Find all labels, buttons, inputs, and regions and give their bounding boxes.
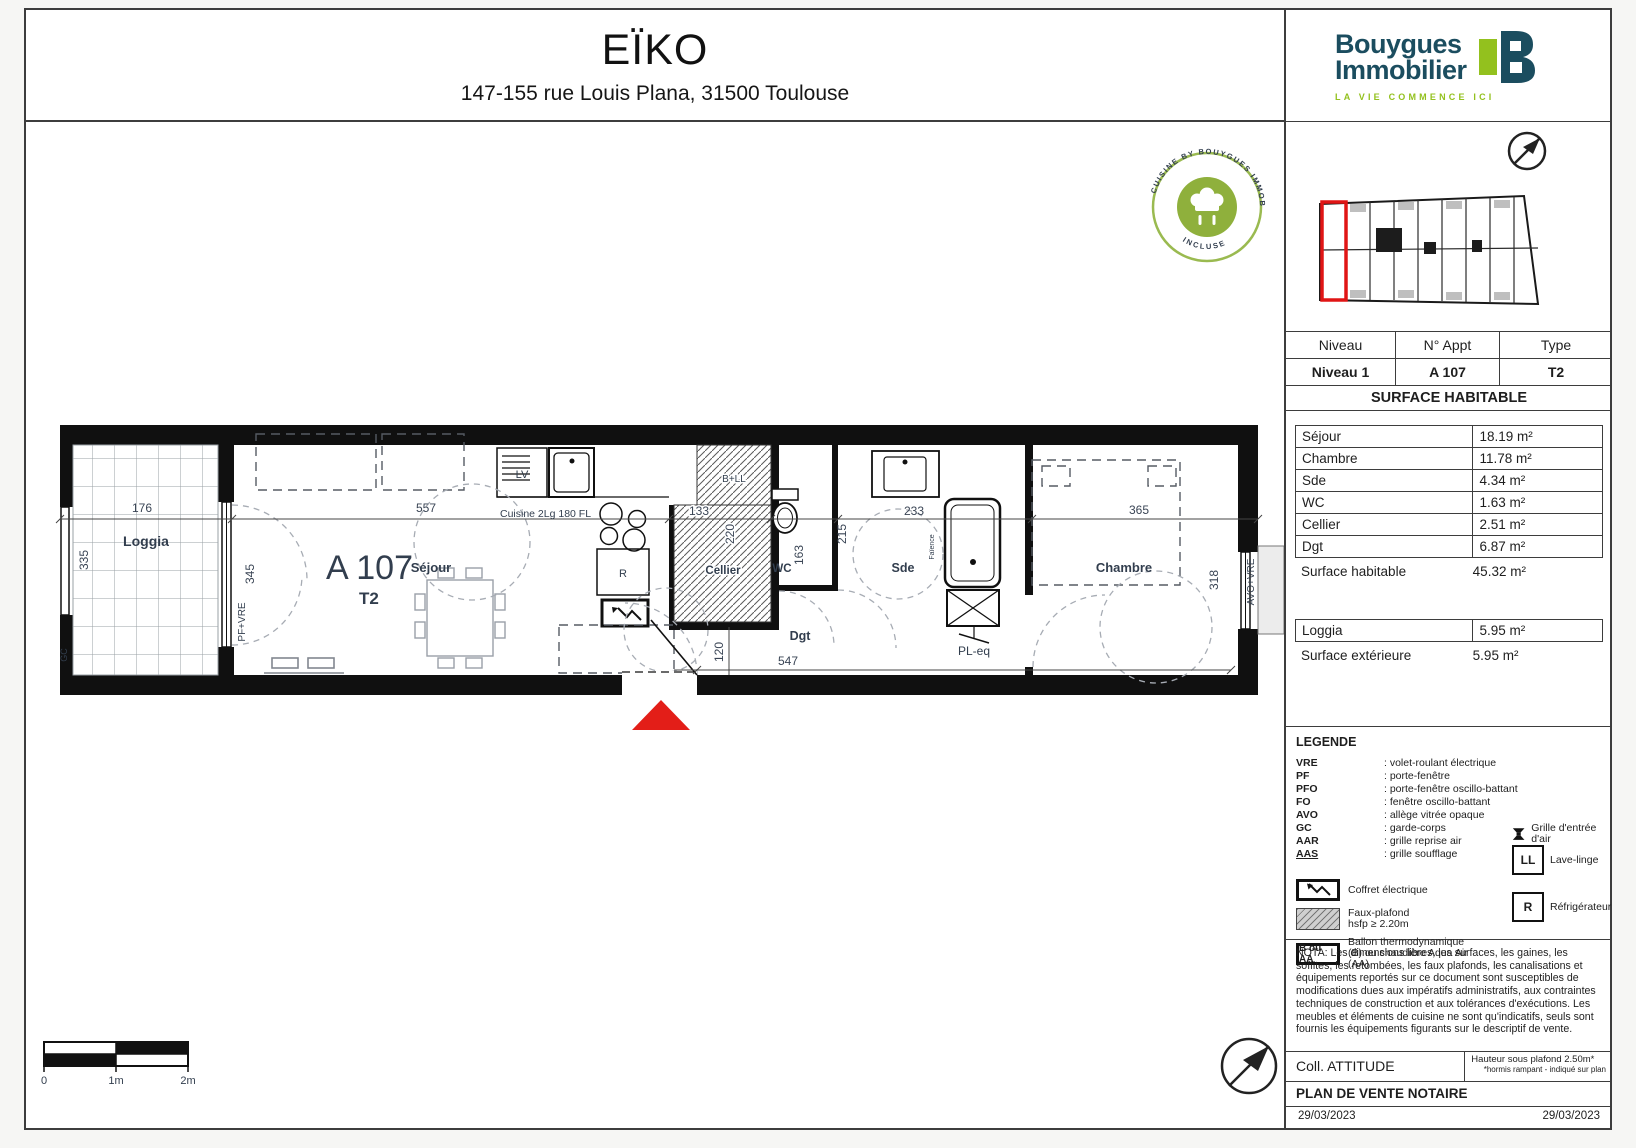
scale-1m: 1m — [108, 1075, 123, 1087]
walls — [60, 425, 1258, 695]
label-cuisine: Cuisine 2Lg 180 FL — [500, 508, 591, 520]
label-sde: Sde — [892, 561, 915, 575]
label-lv: LV — [516, 469, 529, 481]
brand-tagline: LA VIE COMMENCE ICI — [1335, 92, 1563, 102]
legend-abbr: AVO: allège vitrée opaque — [1296, 809, 1602, 822]
doc-type: PLAN DE VENTE NOTAIRE — [1286, 1082, 1612, 1107]
floorplan-drawing: 176 557 133 233 365 335 345 220 163 215 … — [26, 122, 1284, 1128]
legend-title: LEGENDE — [1296, 735, 1602, 749]
coffret-icon — [1296, 879, 1340, 901]
dim-335: 335 — [77, 550, 91, 570]
coffret-electrique-symbol — [602, 600, 648, 626]
r-symbol: R — [1512, 892, 1544, 922]
table-row: Loggia5.95 m² — [1296, 620, 1602, 641]
label-sejour: Séjour — [411, 560, 451, 575]
label-gc: GC — [59, 648, 69, 662]
north-arrow-icon — [1504, 128, 1550, 174]
table-row: Dgt6.87 m² — [1296, 536, 1602, 557]
dates-row: 29/03/2023 29/03/2023 — [1286, 1107, 1612, 1131]
col-appt: N° Appt — [1396, 332, 1500, 359]
dim-318: 318 — [1207, 570, 1221, 590]
label-wc: WC — [772, 563, 791, 575]
legend-abbr: PFO: porte-fenêtre oscillo-battant — [1296, 783, 1602, 796]
date-right: 29/03/2023 — [1542, 1110, 1600, 1131]
legend-abbr: PF: porte-fenêtre — [1296, 770, 1602, 783]
brand-word-2: Immobilier — [1335, 57, 1467, 83]
dim-233: 233 — [904, 504, 924, 518]
collection-row: Coll. ATTITUDE Hauteur sous plafond 2.50… — [1286, 1052, 1612, 1082]
label-loggia: Loggia — [123, 533, 169, 549]
label-b-ll: B+LL — [722, 474, 746, 485]
legend-abbr: VRE: volet-roulant électrique — [1296, 757, 1602, 770]
col-niveau: Niveau — [1286, 332, 1396, 359]
toilet-fixture — [772, 489, 798, 533]
dimension-lines — [56, 515, 1262, 675]
ceiling-height: Hauteur sous plafond 2.50m* — [1471, 1054, 1606, 1065]
table-row: WC1.63 m² — [1296, 492, 1602, 514]
legend-faux-plafond: Faux-plafondhsfp ≥ 2.20m — [1296, 908, 1476, 930]
scale-bar: 0 1m 2m — [41, 1042, 196, 1087]
val-appt: A 107 — [1396, 359, 1500, 385]
legend-abbr: FO: fenêtre oscillo-battant — [1296, 796, 1602, 809]
surface-table: Séjour18.19 m² Chambre11.78 m² Sde4.34 m… — [1295, 425, 1603, 558]
label-unit-number: A 107 — [326, 549, 413, 587]
dim-120: 120 — [712, 642, 726, 662]
legend-lave-linge: LL Lave-linge — [1512, 845, 1604, 875]
label-dgt: Dgt — [790, 629, 812, 643]
label-unit-type: T2 — [359, 589, 379, 608]
brand-word-1: Bouygues — [1335, 31, 1467, 57]
label-chambre: Chambre — [1096, 560, 1152, 575]
floorplan-area: 176 557 133 233 365 335 345 220 163 215 … — [26, 122, 1284, 1128]
project-address: 147-155 rue Louis Plana, 31500 Toulouse — [26, 82, 1284, 106]
dim-220: 220 — [723, 524, 737, 544]
pl-eq-closet — [947, 590, 999, 643]
label-avo-vre: AVO+VRE — [1246, 558, 1257, 605]
col-type: Type — [1500, 332, 1612, 359]
faux-plafond-swatch — [1296, 908, 1340, 930]
brand-wordmark: Bouygues Immobilier — [1335, 31, 1467, 84]
collection-name: Coll. ATTITUDE — [1286, 1052, 1465, 1081]
table-row: Cellier2.51 m² — [1296, 514, 1602, 536]
nota-panel: NOTA: Les dimensions libres, les surface… — [1286, 940, 1612, 1052]
val-niveau: Niveau 1 — [1286, 359, 1396, 385]
ll-symbol: LL — [1512, 845, 1544, 875]
brand-logo-icon — [1477, 29, 1535, 85]
exterior-total: Surface extérieure 5.95 m² — [1295, 642, 1603, 663]
dim-215: 215 — [835, 524, 849, 544]
label-faience: Faïence — [929, 534, 936, 559]
label-pf-vre: PF+VRE — [237, 602, 248, 642]
legend-coffret: Coffret électrique — [1296, 879, 1476, 901]
dim-547: 547 — [778, 654, 798, 668]
dim-163: 163 — [792, 545, 806, 565]
plan-sheet: EÏKO 147-155 rue Louis Plana, 31500 Toul… — [24, 8, 1612, 1130]
kitchen-included-stamp: CUISINE BY BOUYGUES IMMOBILIER INCLUSE — [26, 122, 1267, 261]
tv-unit — [264, 658, 344, 673]
surface-panel: Séjour18.19 m² Chambre11.78 m² Sde4.34 m… — [1286, 411, 1612, 727]
surface-total: Surface habitable 45.32 m² — [1295, 558, 1603, 579]
scale-0: 0 — [41, 1075, 47, 1087]
val-type: T2 — [1500, 359, 1612, 385]
svg-text:CUISINE BY BOUYGUES IMMOBILIER: CUISINE BY BOUYGUES IMMOBILIER — [26, 122, 1267, 208]
north-compass-icon — [1222, 1039, 1276, 1093]
room-labels: Loggia A 107 T2 Séjour Cellier WC Dgt Sd… — [59, 469, 1257, 662]
date-left: 29/03/2023 — [1298, 1110, 1356, 1131]
brand-panel: Bouygues Immobilier LA VIE COMMENCE ICI — [1286, 10, 1612, 122]
dim-345: 345 — [243, 564, 257, 584]
dim-133: 133 — [689, 504, 709, 518]
label-fridge: R — [619, 568, 627, 580]
air-grille-icon — [1512, 827, 1525, 842]
sheet-header: EÏKO 147-155 rue Louis Plana, 31500 Toul… — [26, 10, 1284, 122]
dim-176: 176 — [132, 501, 152, 515]
legend-grille: Grille d'entrée d'air — [1512, 823, 1604, 845]
table-row: Séjour18.19 m² — [1296, 426, 1602, 448]
project-title: EÏKO — [26, 10, 1284, 75]
sidebar: Bouygues Immobilier LA VIE COMMENCE ICI — [1284, 10, 1612, 1128]
dim-365: 365 — [1129, 503, 1149, 517]
surface-title: SURFACE HABITABLE — [1286, 386, 1612, 411]
dim-557: 557 — [416, 501, 436, 515]
scale-2m: 2m — [180, 1075, 195, 1087]
table-row: Sde4.34 m² — [1296, 470, 1602, 492]
entrance-marker — [632, 700, 690, 730]
legend-panel: LEGENDE VRE: volet-roulant électrique PF… — [1286, 727, 1612, 940]
keyplan-panel — [1286, 122, 1612, 332]
legend-refrigerateur: R Réfrigérateur — [1512, 892, 1604, 922]
building-keyplan — [1306, 182, 1546, 318]
main-area: EÏKO 147-155 rue Louis Plana, 31500 Toul… — [26, 10, 1284, 1128]
unit-info-table: Niveau N° Appt Type Niveau 1 A 107 T2 — [1286, 332, 1612, 386]
dining-table — [415, 568, 505, 668]
stamp-arc-text: CUISINE BY BOUYGUES IMMOBILIER — [26, 122, 1267, 208]
label-pl-eq: PL-eq — [958, 644, 990, 658]
loggia-floor — [73, 445, 218, 675]
ceiling-note: *hormis rampant - indiqué sur plan — [1471, 1065, 1606, 1074]
table-row: Chambre11.78 m² — [1296, 448, 1602, 470]
exterior-table: Loggia5.95 m² — [1295, 619, 1603, 642]
label-cellier: Cellier — [705, 565, 741, 577]
